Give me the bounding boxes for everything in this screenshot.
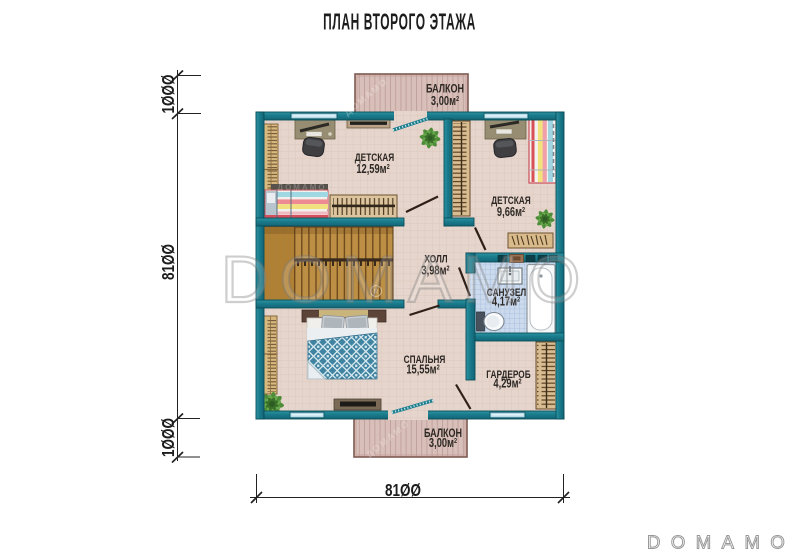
svg-text:DOMAMO: DOMAMO xyxy=(221,242,591,316)
svg-text:ПЛАН ВТОРОГО ЭТАЖА: ПЛАН ВТОРОГО ЭТАЖА xyxy=(323,8,476,34)
svg-text:3,00м2: 3,00м2 xyxy=(431,95,459,109)
svg-text:9,66м2: 9,66м2 xyxy=(497,206,525,220)
svg-text:1ØØØ: 1ØØØ xyxy=(159,418,178,457)
svg-text:1ØØØ: 1ØØØ xyxy=(159,75,178,114)
svg-text:15,55м2: 15,55м2 xyxy=(406,363,440,377)
svg-text:ДОМАМО: ДОМАМО xyxy=(277,183,326,192)
svg-text:81ØØ: 81ØØ xyxy=(159,244,178,280)
svg-text:3,00м2: 3,00м2 xyxy=(429,437,457,451)
svg-text:4,29м2: 4,29м2 xyxy=(493,377,521,391)
svg-text:DOMAMO: DOMAMO xyxy=(647,532,795,553)
svg-text:12,59м2: 12,59м2 xyxy=(356,163,390,177)
svg-text:81ØØ: 81ØØ xyxy=(385,481,421,500)
